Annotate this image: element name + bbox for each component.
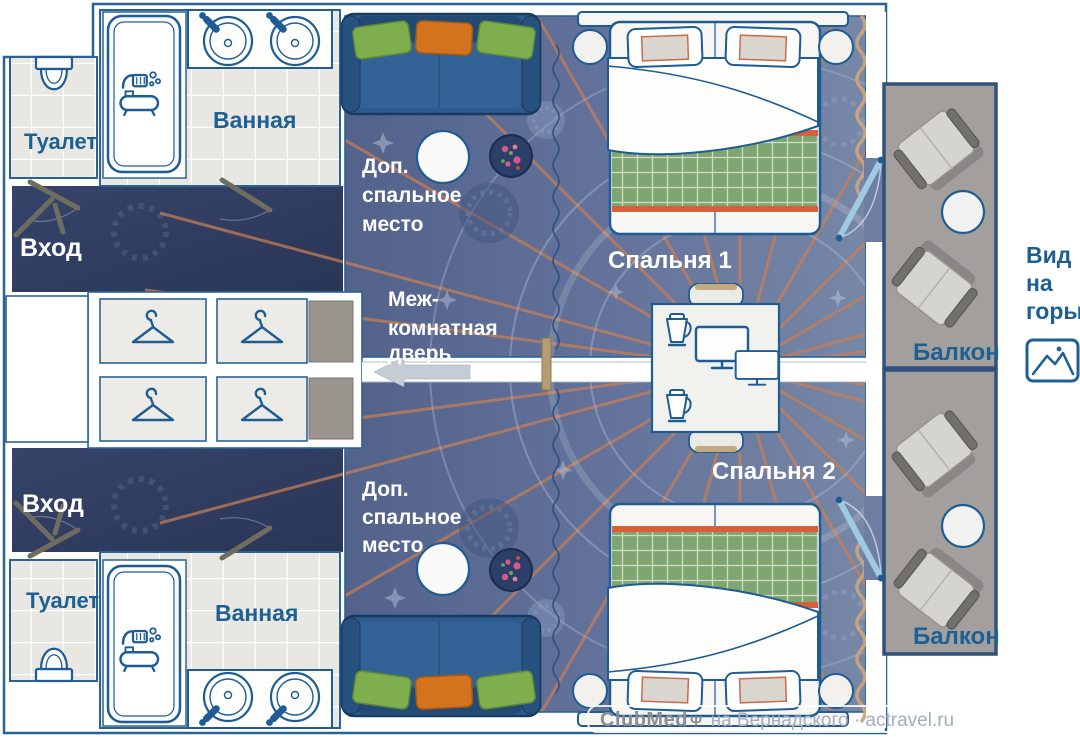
- svg-text:спальное: спальное: [362, 184, 461, 207]
- watermark-brand: ClubMed: [600, 709, 688, 731]
- bathroom-label-room2: Ванная: [215, 600, 298, 626]
- bedroom2-label: Спальня 2: [712, 458, 836, 485]
- svg-text:Меж-: Меж-: [388, 288, 439, 311]
- bedroom1-label: Спальня 1: [608, 247, 732, 274]
- svg-text:горы: горы: [1026, 298, 1080, 324]
- floorplan-svg: Вход Вход Туалет Туалет Ванная Ванная До…: [0, 0, 1080, 737]
- balcony-label-room1: Балкон: [913, 339, 1000, 366]
- toilet-label-room1: Туалет: [24, 129, 97, 154]
- entrance-label-room2: Вход: [22, 490, 84, 518]
- shared-desk-area: [652, 284, 779, 452]
- entrance-label-room1: Вход: [20, 234, 82, 262]
- balcony-room1: [884, 84, 996, 368]
- svg-text:Доп.: Доп.: [362, 478, 409, 501]
- svg-text:на: на: [1026, 270, 1053, 296]
- watermark: ClubMedΨна Вернадского · actravel.ru: [588, 706, 980, 732]
- bathroom-label-room1: Ванная: [213, 107, 296, 133]
- svg-text:ClubMedΨна Вернадского · actra: ClubMedΨна Вернадского · actravel.ru: [600, 709, 954, 731]
- service-shaft: [6, 296, 88, 442]
- svg-text:место: место: [362, 213, 423, 236]
- watermark-suffix: на Вернадского · actravel.ru: [711, 710, 955, 731]
- trident-icon: Ψ: [690, 713, 703, 730]
- closet-cell: [217, 377, 307, 441]
- svg-text:место: место: [362, 534, 423, 557]
- wardrobe-block: [88, 292, 362, 448]
- sofa-room1: [342, 14, 540, 114]
- toilet-label-room2: Туалет: [26, 588, 99, 613]
- luggage-shelf: [309, 378, 353, 439]
- balcony-room2: [884, 370, 996, 654]
- closet-cell: [100, 377, 206, 441]
- bed-room2: [573, 504, 853, 726]
- svg-text:дверь: дверь: [388, 342, 451, 365]
- floorplan-page: Вход Вход Туалет Туалет Ванная Ванная До…: [0, 0, 1080, 737]
- luggage-shelf: [309, 301, 353, 362]
- desk-chair-icon: [689, 430, 743, 452]
- svg-text:Доп.: Доп.: [362, 155, 409, 178]
- balcony-label-room2: Балкон: [913, 623, 1000, 650]
- svg-text:спальное: спальное: [362, 506, 461, 529]
- desk-chair-icon: [689, 284, 743, 306]
- interroom-door-leaf: [542, 338, 551, 390]
- closet-cell: [100, 299, 206, 363]
- bed-room1: [573, 12, 853, 234]
- svg-text:комнатная: комнатная: [388, 317, 498, 340]
- svg-text:Вид: Вид: [1026, 242, 1072, 268]
- monitor-icon: [736, 351, 779, 385]
- sofa-room2: [342, 616, 540, 716]
- closet-cell: [217, 299, 307, 363]
